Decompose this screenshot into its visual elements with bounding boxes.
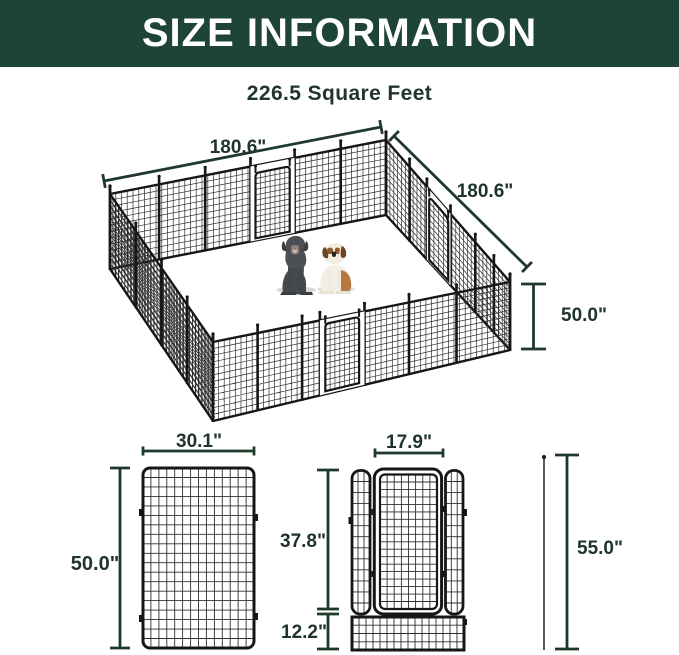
svg-text:50.0": 50.0": [71, 553, 119, 575]
svg-text:180.6": 180.6": [210, 137, 267, 158]
svg-text:37.8": 37.8": [280, 531, 326, 552]
svg-text:55.0": 55.0": [577, 538, 623, 559]
svg-text:12.2": 12.2": [281, 622, 327, 643]
svg-text:50.0": 50.0": [561, 305, 607, 326]
svg-text:180.6": 180.6": [457, 181, 514, 202]
svg-text:17.9": 17.9": [386, 432, 432, 453]
svg-text:30.1": 30.1": [176, 431, 222, 452]
